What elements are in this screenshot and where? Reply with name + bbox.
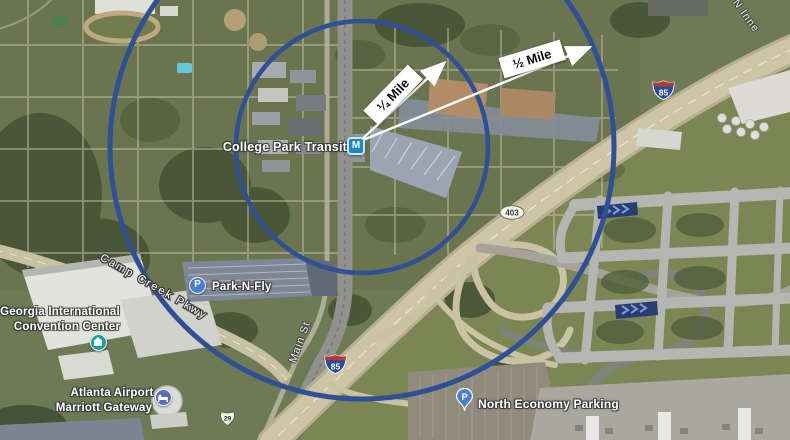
svg-text:85: 85	[659, 88, 669, 98]
road-label-n-inner: N Inne	[730, 0, 761, 35]
parking-pin-icon[interactable]: P	[455, 388, 474, 412]
poi-label-marriott-line1: Atlanta Airport	[70, 387, 153, 399]
bed-glyph	[156, 390, 170, 404]
svg-text:P: P	[461, 392, 468, 403]
interstate-85-shield-north: 85	[652, 80, 675, 100]
road-label-main-st: Main St	[287, 320, 313, 365]
interstate-85-shield-south: 85	[324, 354, 347, 374]
poi-label-north-economy: North Economy Parking	[478, 397, 619, 411]
building-glyph	[91, 335, 105, 349]
marta-m-icon[interactable]: M	[347, 137, 365, 155]
poi-label-convention-line2: Convention Center	[14, 321, 120, 333]
svg-text:85: 85	[331, 362, 341, 372]
station-label: College Park Transit	[223, 140, 347, 154]
svg-text:403: 403	[505, 209, 519, 218]
satellite-map[interactable]: Camp Creek Pkwy College Park Transit M ¼…	[0, 0, 790, 440]
convention-center-icon[interactable]	[90, 334, 107, 351]
parking-circle-icon[interactable]: P	[189, 277, 206, 294]
svg-text:29: 29	[224, 416, 232, 423]
poi-label-park-n-fly: Park-N-Fly	[212, 281, 272, 293]
poi-label-convention-line1: Georgia International	[0, 306, 120, 318]
label-overlay: College Park Transit M ¼ Mile ½ Mile P P…	[0, 0, 790, 440]
us-29-shield: 29	[219, 410, 236, 427]
half-mile-measure-label: ½ Mile	[498, 40, 565, 79]
ga-403-shield: 403	[499, 205, 525, 220]
quarter-mile-measure-label: ¼ Mile	[363, 65, 422, 125]
poi-label-marriott-line2: Marriott Gateway	[56, 402, 153, 414]
hotel-icon[interactable]	[155, 389, 172, 406]
